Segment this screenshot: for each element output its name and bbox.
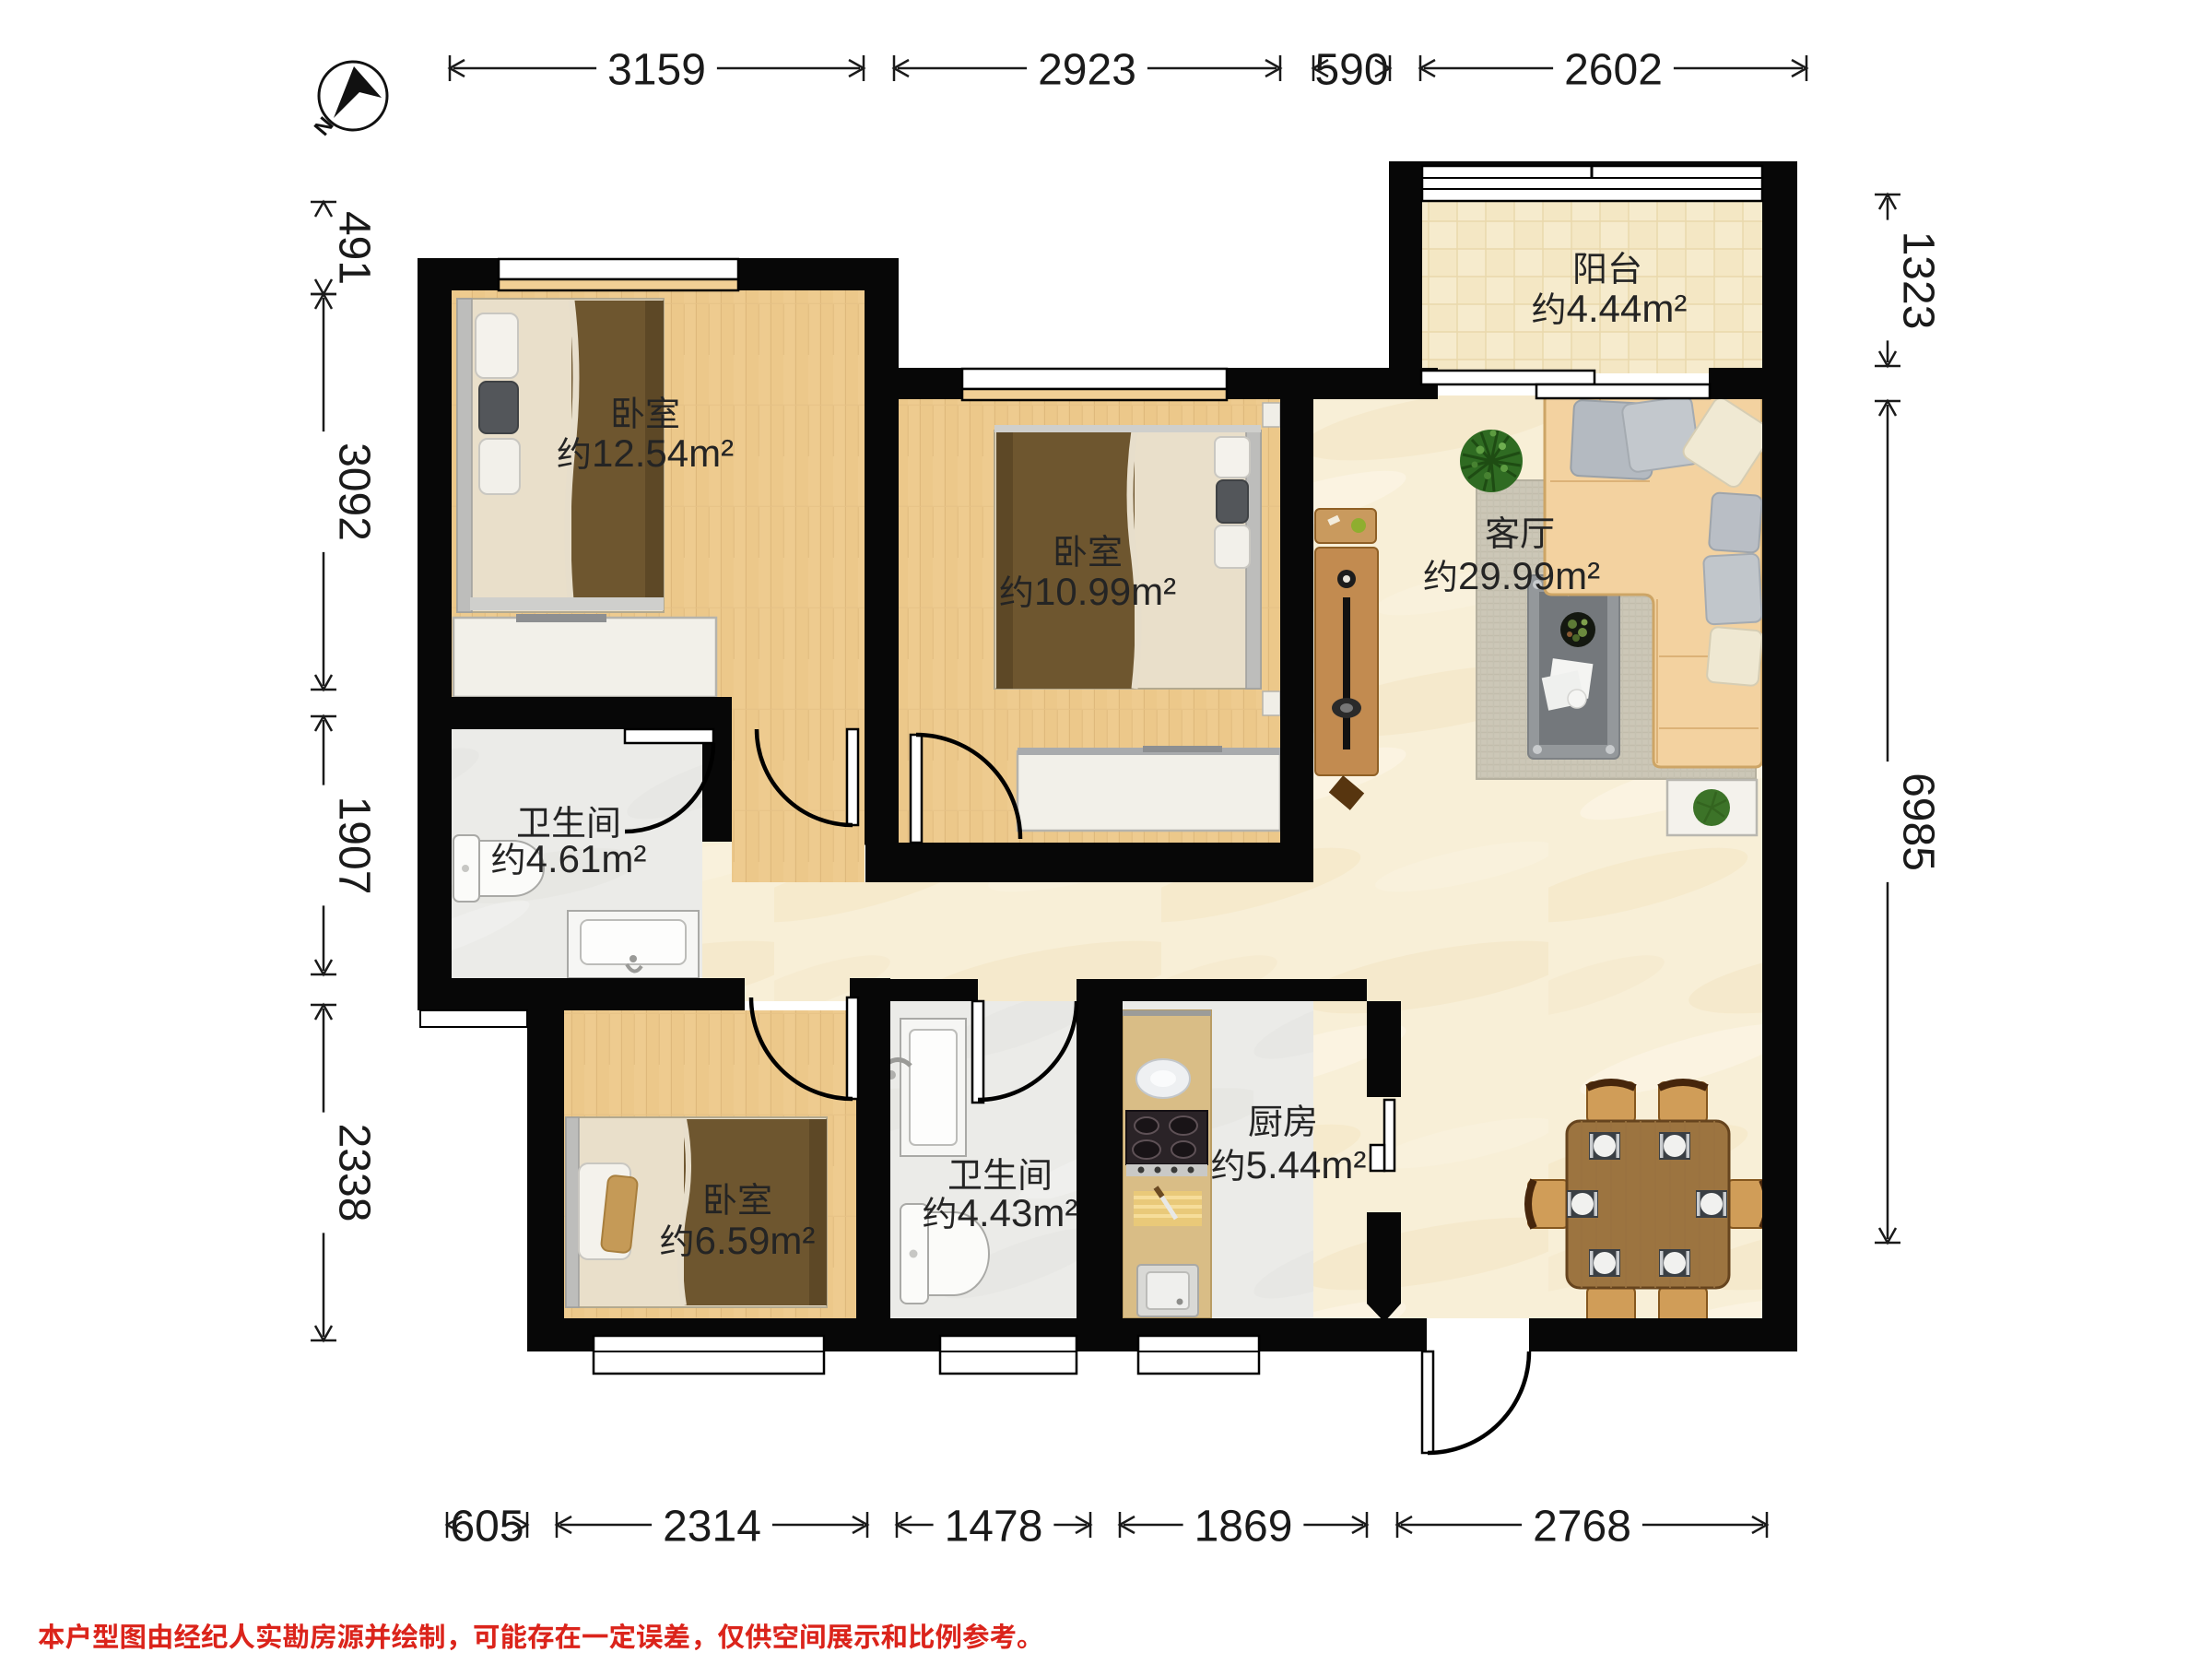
svg-text:2338: 2338 bbox=[329, 1124, 378, 1222]
svg-text:29.99m²: 29.99m² bbox=[1458, 554, 1600, 597]
svg-text:2768: 2768 bbox=[1533, 1502, 1631, 1551]
svg-text:3159: 3159 bbox=[607, 45, 706, 94]
svg-text:2923: 2923 bbox=[1038, 45, 1136, 94]
svg-text:1869: 1869 bbox=[1194, 1502, 1293, 1551]
svg-text:3092: 3092 bbox=[329, 443, 378, 541]
svg-text:1323: 1323 bbox=[1893, 231, 1942, 330]
svg-text:2314: 2314 bbox=[663, 1502, 761, 1551]
svg-text:1478: 1478 bbox=[945, 1502, 1043, 1551]
svg-text:4.61m²: 4.61m² bbox=[526, 837, 647, 880]
svg-text:2602: 2602 bbox=[1564, 45, 1663, 94]
svg-text:605: 605 bbox=[450, 1502, 524, 1551]
svg-text:590: 590 bbox=[1314, 45, 1388, 94]
svg-text:6985: 6985 bbox=[1893, 773, 1942, 871]
svg-text:4.43m²: 4.43m² bbox=[958, 1191, 1078, 1234]
svg-text:5.44m²: 5.44m² bbox=[1246, 1143, 1367, 1186]
svg-text:1907: 1907 bbox=[329, 797, 378, 895]
svg-text:491: 491 bbox=[329, 211, 378, 285]
svg-text:6.59m²: 6.59m² bbox=[695, 1219, 816, 1262]
svg-text:10.99m²: 10.99m² bbox=[1034, 570, 1176, 613]
svg-text:4.44m²: 4.44m² bbox=[1567, 287, 1688, 330]
svg-text:12.54m²: 12.54m² bbox=[592, 431, 734, 475]
